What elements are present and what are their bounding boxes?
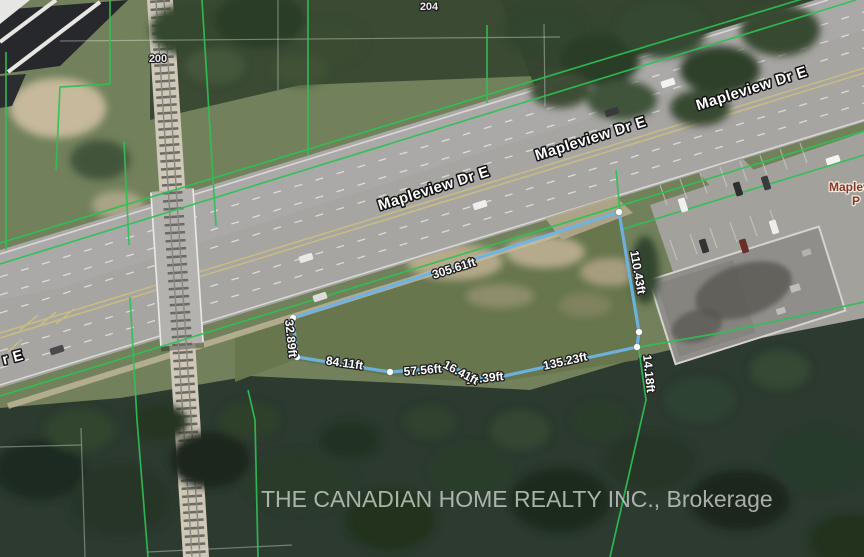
address-label-200: 200 <box>149 53 167 65</box>
map-canvas: 305.61ft 110.43ft 14.18ft 135.23ft 19.39… <box>0 0 864 557</box>
aerial-map: 305.61ft 110.43ft 14.18ft 135.23ft 19.39… <box>0 0 864 557</box>
address-label-204: 204 <box>420 1 439 13</box>
poi-label-line1: Maplev <box>829 180 864 194</box>
poi-label-line2: P <box>852 194 860 208</box>
brokerage-watermark: THE CANADIAN HOME REALTY INC., Brokerage <box>261 486 773 512</box>
